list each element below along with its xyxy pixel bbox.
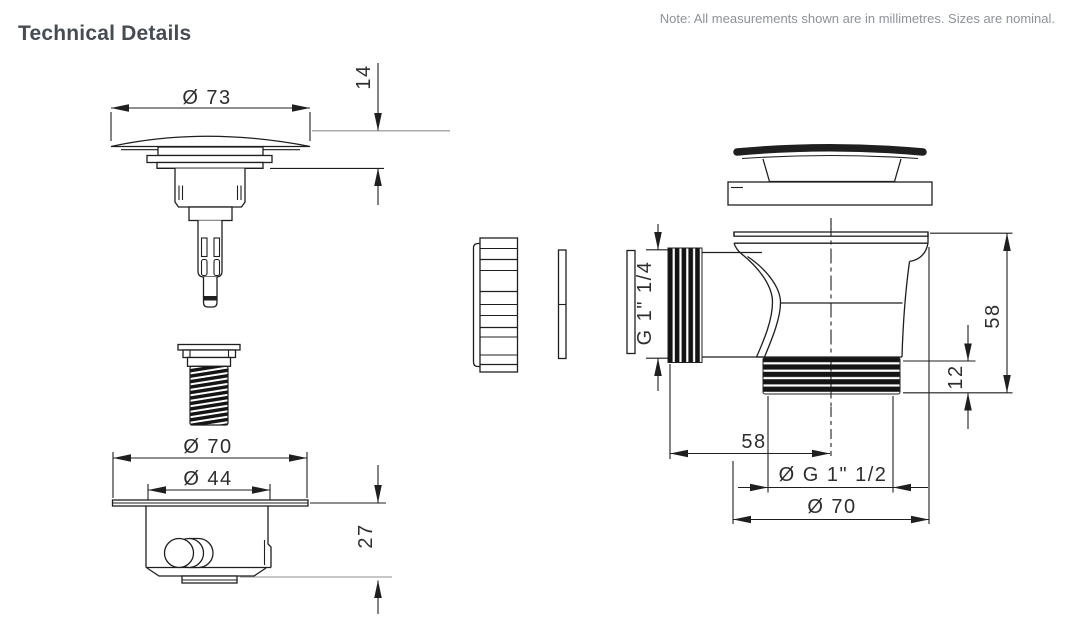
inlet-thread (668, 248, 702, 363)
fixing-screw-drawing (178, 345, 240, 426)
screw-thread (190, 366, 228, 425)
body-dim-inlet-thread: G 1" 1/4 (634, 224, 670, 391)
plug-stem-band (204, 296, 218, 301)
outlet-thread (763, 358, 900, 395)
dim-label-housing-depth: 27 (355, 523, 377, 548)
dim-label-total-height: 58 (982, 303, 1004, 328)
technical-details-panel: Technical Details Note: All measurements… (0, 0, 1066, 629)
plug-drawing: Ø 73 14 (111, 63, 450, 307)
dim-label-inlet-thread: G 1" 1/4 (634, 261, 656, 346)
technical-drawing-canvas: Ø 73 14 (0, 0, 1066, 629)
dim-label-housing-inner: Ø 44 (183, 468, 232, 490)
dim-label-plug-cap-height: 14 (353, 64, 375, 89)
dim-label-outlet-depth: 12 (945, 364, 967, 389)
clicker-housing-drawing: Ø 70 Ø 44 (113, 436, 393, 614)
flange-disc (737, 148, 923, 152)
housing-dim-depth: 27 (240, 465, 392, 614)
plug-dim-cap-height: 14 (270, 63, 450, 205)
dim-label-outlet-thread: Ø G 1" 1/2 (779, 464, 888, 486)
waste-body-drawing: G 1" 1/4 58 (474, 222, 1013, 525)
dim-label-flange-diameter: Ø 70 (807, 496, 856, 518)
dim-label-inlet-offset: 58 (741, 431, 766, 453)
flange-piece-drawing (728, 148, 932, 230)
plug-dim-diameter: Ø 73 (111, 87, 310, 141)
dim-label-housing-outer: Ø 70 (183, 436, 232, 458)
body-dim-outlet-depth: 12 (903, 325, 976, 429)
dim-label-plug-diameter: Ø 73 (182, 87, 231, 109)
knurled-nut (474, 238, 518, 372)
plug-cap (111, 136, 310, 146)
